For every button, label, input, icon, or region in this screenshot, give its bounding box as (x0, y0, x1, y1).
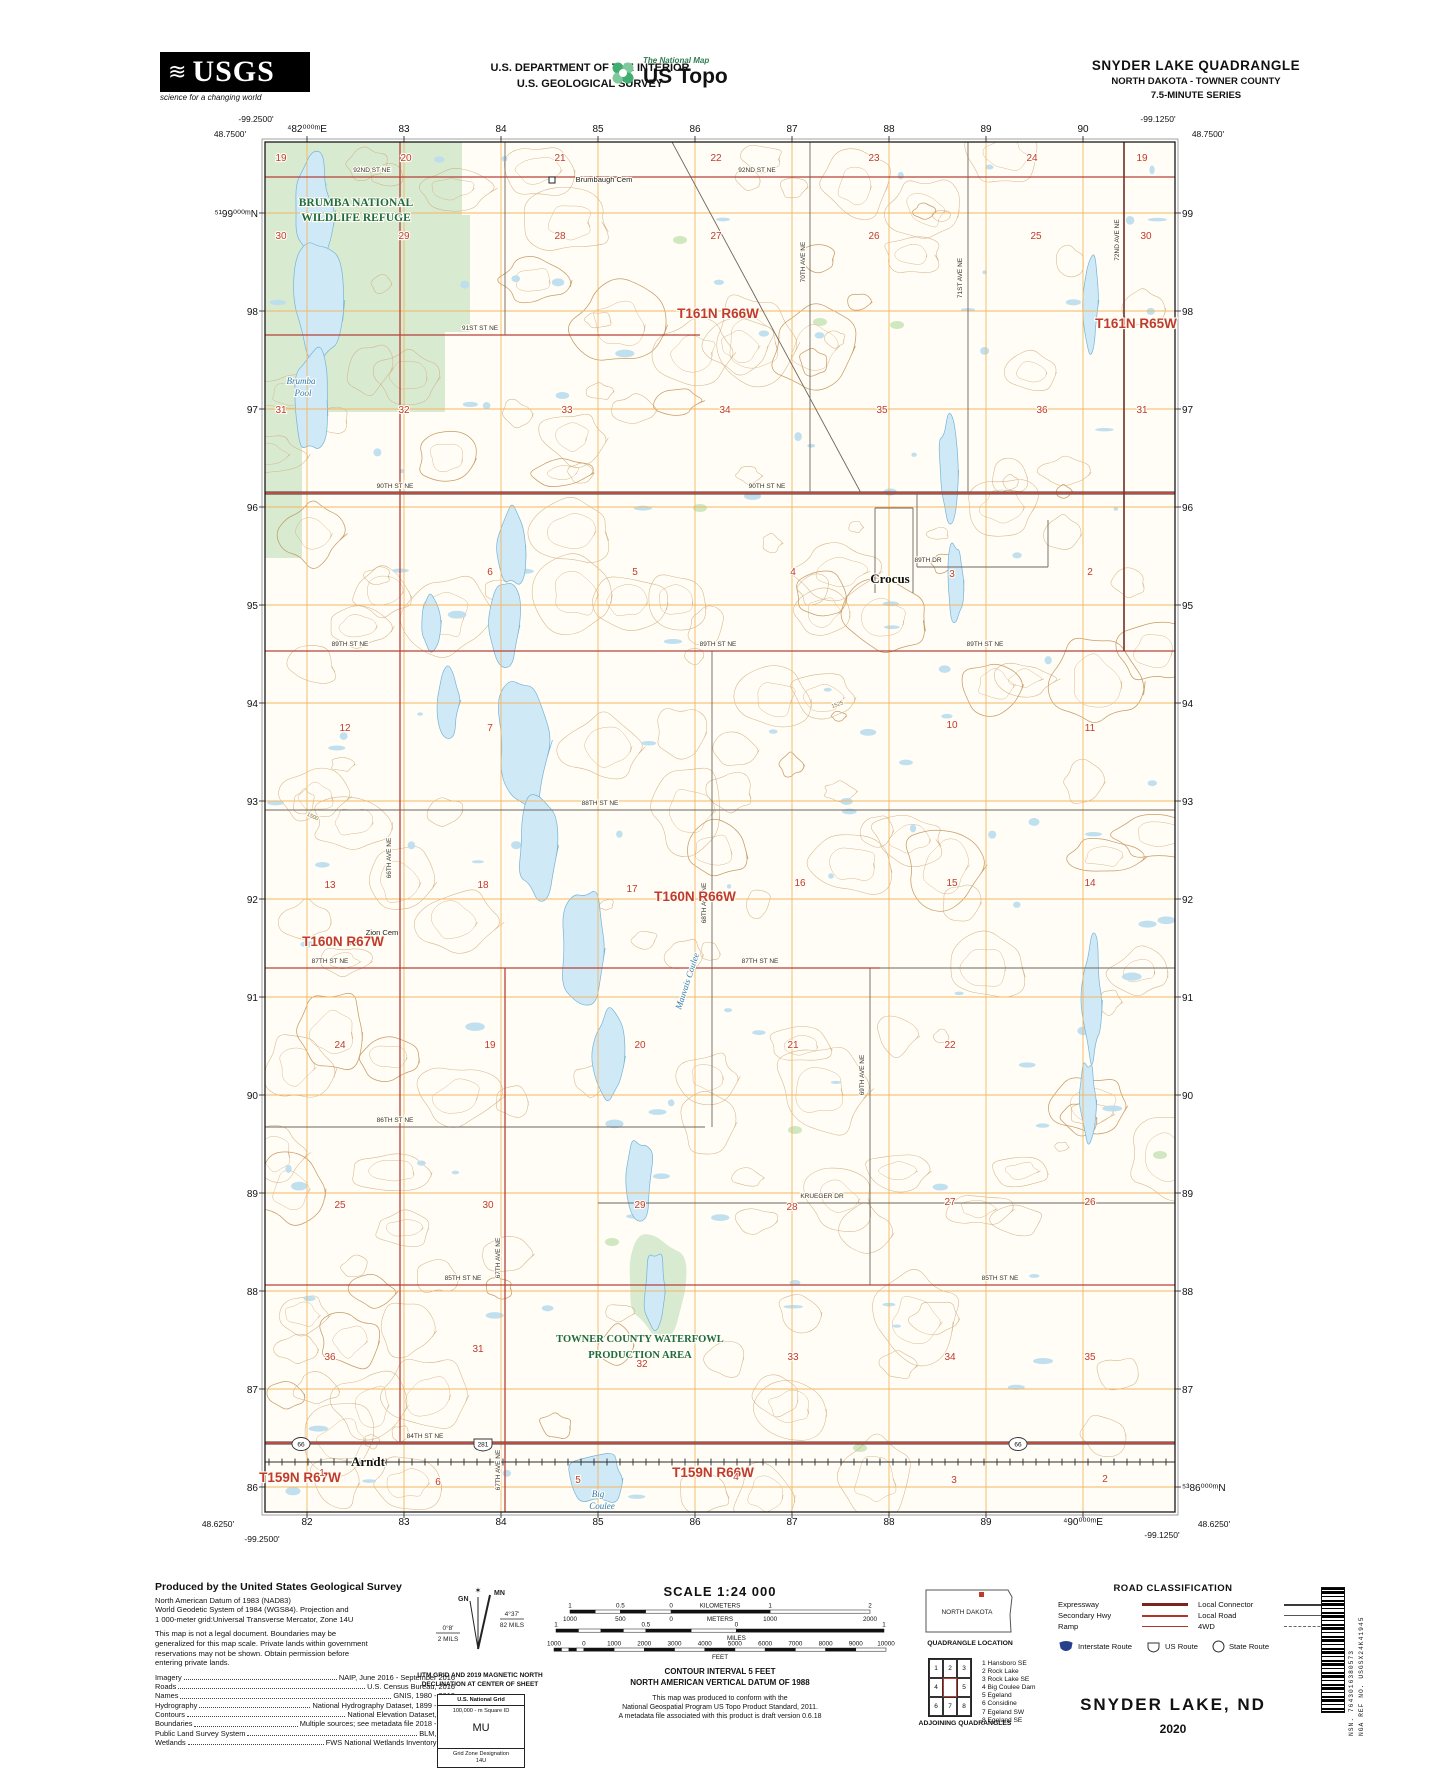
map-label-mge: 96 (247, 503, 259, 514)
map-label-sec: 10 (946, 720, 958, 731)
adjoining-quads: 12345678 (928, 1658, 972, 1717)
map-label-mgw: 99 (1182, 209, 1194, 220)
map-label-pl: Crocus (870, 571, 909, 586)
quad-location-marker (979, 1592, 984, 1597)
map-label-rd: 89TH ST NE (700, 641, 737, 648)
svg-text:0.5: 0.5 (616, 1603, 625, 1610)
map-label-sec: 2 (1102, 1474, 1108, 1485)
svg-text:0.5: 0.5 (641, 1622, 650, 1629)
map-label-sec: 36 (1036, 405, 1048, 416)
map-label-pls: Zion Cem (366, 928, 399, 937)
sheet-year: 2020 (1058, 1722, 1288, 1736)
map-label-rd: 70TH AVE NE (800, 241, 807, 282)
svg-text:7000: 7000 (788, 1641, 803, 1648)
map-label-mg: 89 (980, 124, 992, 135)
svg-text:5000: 5000 (728, 1641, 743, 1648)
adjoining-cell: 4 (929, 1678, 943, 1697)
cemetery-symbol (549, 177, 555, 183)
map-label-sec: 25 (334, 1200, 346, 1211)
map-label-sec: 4 (733, 1472, 739, 1483)
adjoining-cell: 2 (943, 1659, 957, 1678)
conform-line2: National Geospatial Program US Topo Prod… (545, 1703, 895, 1712)
map-label-sec: 24 (334, 1040, 346, 1051)
usng-subtitle: 100,000 - m Square ID (438, 1706, 524, 1714)
map-label-rd: KRUEGER DR (800, 1193, 844, 1200)
map-label-mge: 90 (247, 1091, 259, 1102)
map-label-sec: 28 (786, 1202, 798, 1213)
usng-title: U.S. National Grid (438, 1695, 524, 1706)
map-label-rd: 67TH AVE NE (495, 1237, 502, 1278)
map-label-rd: 85TH ST NE (445, 1275, 482, 1282)
map-label-sec: 11 (1085, 723, 1096, 734)
adjoining-caption: ADJOINING QUADRANGLES (905, 1720, 1025, 1729)
conform-line3: A metadata file associated with this pro… (545, 1712, 895, 1721)
svg-text:8000: 8000 (819, 1641, 834, 1648)
map-label-mg: 83 (398, 124, 410, 135)
map-label-mgw: 91 (1182, 993, 1194, 1004)
road-class-label: Local Road (1198, 1610, 1278, 1621)
map-label-mge: 95 (247, 601, 259, 612)
usng-zone-label: Grid Zone Designation (438, 1748, 524, 1758)
svg-text:1: 1 (882, 1622, 886, 1629)
map-label-rd: 87TH ST NE (742, 958, 779, 965)
topo-map: 6628166-99.2500'48.7500'⁴82⁰⁰⁰ᵐE83848586… (0, 0, 1445, 1746)
map-label-mg: 83 (398, 1517, 410, 1528)
map-label-sec: 7 (487, 723, 493, 734)
map-label-sec: 20 (634, 1040, 646, 1051)
map-label-mgs: 48.6250' (1198, 1519, 1231, 1529)
map-label-rd: 90TH ST NE (377, 483, 414, 490)
map-label-sec: 26 (1084, 1197, 1096, 1208)
map-label-grn: WILDLIFE REFUGE (301, 212, 411, 224)
map-label-mg: 90 (1077, 124, 1089, 135)
map-label-mgw: 95 (1182, 601, 1194, 612)
map-label-rd: 86TH ST NE (377, 1117, 414, 1124)
map-label-sec: 30 (275, 231, 287, 242)
map-label-mg: ⁴90⁰⁰⁰ᵐE (1063, 1517, 1103, 1528)
map-label-mgs: -99.1250' (1144, 1530, 1180, 1540)
svg-text:2: 2 (868, 1603, 872, 1610)
produced-title: Produced by the United States Geological… (155, 1583, 455, 1593)
map-label-rd: 89TH ST NE (332, 641, 369, 648)
road-class-label: Expressway (1058, 1599, 1136, 1610)
map-label-sec: 30 (1140, 231, 1152, 242)
map-label-sec: 19 (484, 1040, 496, 1051)
map-label-sec: 29 (634, 1200, 646, 1211)
map-label-twp: T160N R66W (654, 889, 736, 904)
map-label-mge: 88 (247, 1287, 259, 1298)
adjoining-cell: 3 (957, 1659, 971, 1678)
map-label-sec: 35 (1084, 1352, 1096, 1363)
adjoining-cell: 8 (957, 1697, 971, 1716)
production-credits: Produced by the United States Geological… (155, 1583, 455, 1747)
declination-caption-line2: DECLINATION AT CENTER OF SHEET (395, 1681, 565, 1690)
map-label-mg: 82 (301, 1517, 313, 1528)
credit-row: ContoursNational Elevation Dataset, 2012 (155, 1710, 455, 1719)
adjoining-quad-names: 1 Hansboro SE2 Rock Lake3 Rock Lake SE4 … (982, 1660, 1036, 1725)
map-label-mge: 86 (247, 1483, 259, 1494)
map-label-grn2: TOWNER COUNTY WATERFOWL (556, 1334, 724, 1345)
svg-text:1000: 1000 (563, 1616, 578, 1623)
map-label-rd: 67TH AVE NE (495, 1449, 502, 1490)
map-label-sec: 23 (868, 153, 880, 164)
declination-caption-line1: UTM GRID AND 2019 MAGNETIC NORTH (395, 1672, 565, 1681)
adjoining-cell: 6 (929, 1697, 943, 1716)
map-label-sec: 21 (787, 1040, 799, 1051)
map-label-wt: Big (592, 1489, 605, 1499)
gn-mils-value: 2 MILS (438, 1636, 459, 1643)
svg-text:281: 281 (478, 1441, 489, 1448)
svg-text:0: 0 (735, 1622, 739, 1629)
map-label-sec: 14 (1084, 878, 1096, 889)
interstate-shield-legend: Interstate Route (1058, 1640, 1132, 1653)
svg-text:2000: 2000 (863, 1616, 878, 1623)
map-label-mg: 87 (786, 124, 798, 135)
map-label-sec: 29 (398, 231, 410, 242)
map-label-mge: 98 (247, 307, 259, 318)
map-label-pls: Brumbaugh Cem (576, 175, 633, 184)
map-label-sec: 31 (1136, 405, 1148, 416)
map-label-mge: 94 (247, 699, 259, 710)
map-label-sec: 1 (319, 1468, 325, 1479)
map-label-sec: 15 (946, 878, 958, 889)
svg-text:1: 1 (768, 1603, 772, 1610)
svg-text:66: 66 (1014, 1441, 1022, 1448)
map-label-mgs: 48.7500' (1192, 129, 1225, 139)
route-shield: 281 (474, 1439, 492, 1451)
vertical-datum: NORTH AMERICAN VERTICAL DATUM OF 1988 (570, 1677, 870, 1688)
map-label-mge: 87 (247, 1385, 259, 1396)
map-label-sec: 5 (632, 567, 638, 578)
mn-declination-value: 4°37' (505, 1610, 520, 1618)
map-label-sec: 35 (876, 405, 888, 416)
map-label-rd: 91ST ST NE (462, 325, 499, 332)
road-class-label: 4WD (1198, 1621, 1278, 1632)
map-label-sec: 32 (398, 405, 410, 416)
map-label-rd: 92ND ST NE (353, 167, 391, 174)
us-shield-legend: US Route (1146, 1641, 1198, 1653)
map-label-rd: 87TH ST NE (312, 958, 349, 965)
map-label-mgw: 90 (1182, 1091, 1194, 1102)
map-label-mgs: 48.7500' (214, 129, 247, 139)
map-label-mg: 86 (689, 1517, 701, 1528)
map-label-sec: 3 (949, 569, 955, 580)
map-label-rd: 88TH ST NE (582, 800, 619, 807)
map-label-mgw: 94 (1182, 699, 1194, 710)
map-label-mgw: 96 (1182, 503, 1194, 514)
map-label-grn: BRUMBA NATIONAL (299, 197, 414, 209)
map-label-sec: 30 (482, 1200, 494, 1211)
svg-text:1000: 1000 (607, 1641, 622, 1648)
road-class-label: Secondary Hwy (1058, 1610, 1136, 1621)
svg-text:500: 500 (615, 1616, 626, 1623)
barcode (1322, 1588, 1344, 1712)
svg-text:1: 1 (554, 1622, 558, 1629)
map-label-rd: 69TH AVE NE (859, 1054, 866, 1095)
mn-mils-value: 82 MILS (500, 1622, 525, 1629)
map-label-sec: 27 (944, 1197, 956, 1208)
adjoining-cell: 1 (929, 1659, 943, 1678)
map-label-sec: 25 (1030, 231, 1042, 242)
map-label-mg: 85 (592, 1517, 604, 1528)
map-label-rd: 71ST AVE NE (957, 257, 964, 298)
map-label-sec: 13 (324, 880, 336, 891)
map-label-mg: 84 (495, 124, 507, 135)
map-label-sec: 33 (561, 405, 573, 416)
map-label-rd: 85TH ST NE (982, 1275, 1019, 1282)
map-label-mg: 88 (883, 1517, 895, 1528)
map-label-rd: 92ND ST NE (738, 167, 776, 174)
map-label-mgw: 98 (1182, 307, 1194, 318)
map-label-mg: ⁴82⁰⁰⁰ᵐE (287, 124, 327, 135)
map-label-mg: 85 (592, 124, 604, 135)
svg-text:2000: 2000 (637, 1641, 652, 1648)
map-label-mgw: 87 (1182, 1385, 1194, 1396)
state-caption: QUADRANGLE LOCATION (922, 1640, 1018, 1649)
state-shield-legend: State Route (1212, 1640, 1269, 1653)
svg-text:10000: 10000 (877, 1641, 895, 1648)
datum-paragraph: North American Datum of 1983 (NAD83)Worl… (155, 1596, 455, 1625)
svg-text:9000: 9000 (849, 1641, 864, 1648)
state-name: NORTH DAKOTA (941, 1609, 993, 1616)
map-label-mgs: -99.2500' (238, 114, 274, 124)
svg-text:FEET: FEET (712, 1654, 728, 1661)
map-label-sec: 18 (477, 880, 489, 891)
map-label-grn2: PRODUCTION AREA (588, 1350, 692, 1361)
map-label-mg: 88 (883, 124, 895, 135)
map-label-pl: Arndt (351, 1454, 386, 1469)
map-label-mgw: ⁵³86⁰⁰⁰ᵐN (1182, 1483, 1226, 1494)
svg-text:METERS: METERS (707, 1616, 733, 1623)
map-label-sec: 12 (339, 723, 351, 734)
map-label-wt: Brumba (287, 376, 316, 386)
map-label-sec: 19 (1136, 153, 1148, 164)
map-label-mgs: 48.6250' (202, 1519, 235, 1529)
map-label-rd: 89TH DR (914, 557, 941, 564)
map-label-sec: 22 (944, 1040, 956, 1051)
map-label-mg: 89 (980, 1517, 992, 1528)
contour-interval: CONTOUR INTERVAL 5 FEET (570, 1666, 870, 1677)
map-label-sec: 34 (719, 405, 731, 416)
contour-interval-note: CONTOUR INTERVAL 5 FEET NORTH AMERICAN V… (570, 1666, 870, 1688)
map-label-sec: 20 (400, 153, 412, 164)
credit-row: BoundariesMultiple sources; see metadata… (155, 1719, 455, 1728)
map-label-sec: 6 (487, 567, 493, 578)
svg-text:3000: 3000 (668, 1641, 683, 1648)
conformance-note: This map was produced to conform with th… (545, 1694, 895, 1721)
map-label-twp: T159N R66W (672, 1465, 754, 1480)
map-label-mgw: 93 (1182, 797, 1194, 808)
svg-text:0: 0 (669, 1603, 673, 1610)
true-north-star: ✶ (475, 1586, 482, 1595)
map-label-mgw: 97 (1182, 405, 1194, 416)
map-label-sec: 17 (626, 884, 638, 895)
map-interior: 6628166 (227, 125, 1206, 1521)
map-label-mgs: -99.2500' (244, 1534, 280, 1544)
map-label-mgw: 88 (1182, 1287, 1194, 1298)
adjoining-cell: 5 (957, 1678, 971, 1697)
svg-text:4000: 4000 (698, 1641, 713, 1648)
map-label-sec: 31 (275, 405, 287, 416)
map-label-sec: 26 (868, 231, 880, 242)
credit-row: Public Land Survey SystemBLM, 2018 (155, 1729, 455, 1738)
road-class-title: ROAD CLASSIFICATION (1058, 1583, 1288, 1594)
scale-bars: 10.50KILOMETERS1210005000METERS100020001… (540, 1596, 910, 1664)
map-label-sec: 22 (710, 153, 722, 164)
road-class-label: Local Connector (1198, 1599, 1278, 1610)
map-label-mgw: 89 (1182, 1189, 1194, 1200)
map-label-mgs: -99.1250' (1140, 114, 1176, 124)
map-label-mge: 92 (247, 895, 259, 906)
map-label-sec: 2 (1087, 567, 1093, 578)
barcode-nga: NGA REF NO. USGSX24K41945 (1358, 1617, 1365, 1736)
declination-caption: UTM GRID AND 2019 MAGNETIC NORTH DECLINA… (395, 1672, 565, 1689)
map-label-sec: 33 (787, 1352, 799, 1363)
svg-text:KILOMETERS: KILOMETERS (700, 1603, 741, 1610)
road-classification: ROAD CLASSIFICATION ExpresswayLocal Conn… (1058, 1583, 1358, 1653)
declination-diagram: ✶ MN GN 4°37' 82 MILS 0°8' 2 MILS (420, 1583, 540, 1669)
route-shield: 66 (292, 1438, 310, 1451)
map-label-mge: ⁵¹99⁰⁰⁰ᵐN (214, 209, 258, 220)
map-label-rd: 90TH ST NE (749, 483, 786, 490)
map-label-twp: T161N R65W (1095, 316, 1177, 331)
map-label-rd: 72ND AVE NE (1114, 219, 1121, 261)
map-label-sec: 31 (472, 1344, 484, 1355)
usng-zone: 14U (438, 1758, 524, 1767)
map-label-mg: 84 (495, 1517, 507, 1528)
map-label-sec: 4 (790, 567, 796, 578)
legal-paragraph: This map is not a legal document. Bounda… (155, 1629, 455, 1667)
map-label-rd: 84TH ST NE (407, 1433, 444, 1440)
map-label-wt: Coulee (589, 1501, 615, 1511)
map-label-mge: 89 (247, 1189, 259, 1200)
credit-row: NamesGNIS, 1980 - 2019 (155, 1691, 455, 1700)
map-label-wt: Pool (294, 388, 312, 398)
svg-text:1000: 1000 (763, 1616, 778, 1623)
map-label-mge: 97 (247, 405, 259, 416)
map-label-sec: 27 (710, 231, 722, 242)
map-label-sec: 5 (575, 1475, 581, 1486)
svg-text:1000: 1000 (547, 1641, 562, 1648)
state-locator: NORTH DAKOTA (922, 1585, 1018, 1637)
map-label-sec: 28 (554, 231, 566, 242)
map-label-mg: 86 (689, 124, 701, 135)
map-label-mg: 87 (786, 1517, 798, 1528)
map-label-sec: 21 (554, 153, 566, 164)
map-label-sec: 36 (324, 1352, 336, 1363)
map-label-rd: 89TH ST NE (967, 641, 1004, 648)
map-label-sec: 24 (1026, 153, 1038, 164)
credit-row: HydrographyNational Hydrography Dataset,… (155, 1701, 455, 1710)
map-label-twp: T161N R66W (677, 306, 759, 321)
map-label-sec: 16 (794, 878, 806, 889)
svg-text:66: 66 (297, 1441, 305, 1448)
map-label-mge: 93 (247, 797, 259, 808)
svg-text:0: 0 (582, 1641, 586, 1648)
svg-text:0: 0 (669, 1616, 673, 1623)
conform-line1: This map was produced to conform with th… (545, 1694, 895, 1703)
map-label-sec: 19 (275, 153, 287, 164)
usng-box: U.S. National Grid 100,000 - m Square ID… (437, 1694, 525, 1768)
map-label-sec: 3 (951, 1475, 957, 1486)
svg-text:6000: 6000 (758, 1641, 773, 1648)
map-label-sec: 6 (435, 1477, 441, 1488)
usgs-topo-sheet: { "header": { "usgs_logo": "USGS", "usgs… (0, 0, 1445, 1746)
map-label-sec: 34 (944, 1352, 956, 1363)
gn-label: GN (458, 1596, 469, 1603)
map-label-mgw: 92 (1182, 895, 1194, 906)
mn-label: MN (494, 1590, 505, 1597)
map-label-mge: 91 (247, 993, 259, 1004)
route-shield: 66 (1009, 1438, 1027, 1451)
sheet-title: SNYDER LAKE, ND (1058, 1695, 1288, 1715)
barcode-nsn: NSN. 7643016380573 (1348, 1650, 1355, 1736)
map-label-rd: 66TH AVE NE (386, 837, 393, 878)
svg-text:1: 1 (568, 1603, 572, 1610)
usng-square-id: MU (438, 1714, 524, 1742)
gn-declination-value: 0°8' (442, 1624, 453, 1632)
adjoining-cell (943, 1678, 957, 1697)
adjoining-cell: 7 (943, 1697, 957, 1716)
road-class-label: Ramp (1058, 1621, 1136, 1632)
map-label-twp: T159N R67W (259, 1470, 341, 1485)
